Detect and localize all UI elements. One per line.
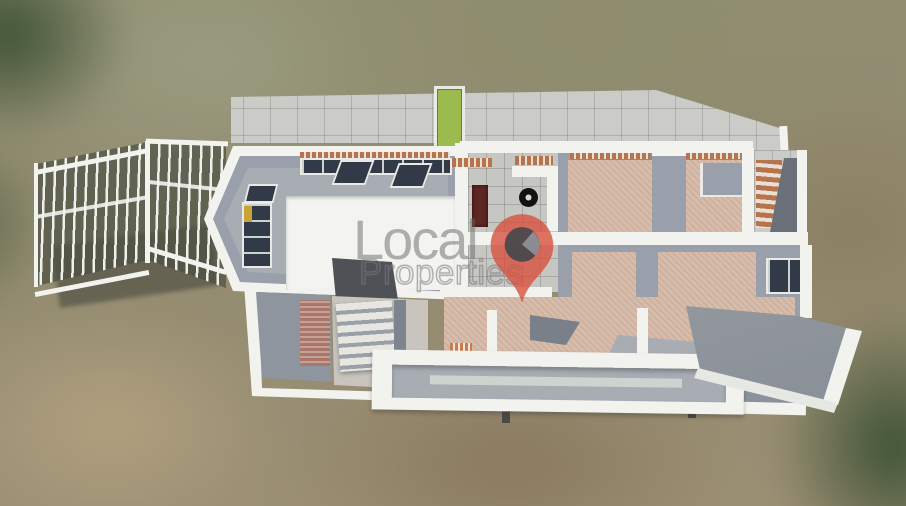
bedroom-divider-wall-top bbox=[652, 150, 686, 156]
courtyard-lintel-2 bbox=[515, 156, 553, 165]
courtyard-lintel-1 bbox=[452, 158, 492, 167]
pergola-post-left-edge bbox=[34, 163, 38, 287]
facade-leg-1 bbox=[502, 410, 510, 423]
bedroom2-east-wall bbox=[742, 148, 754, 236]
round-stove bbox=[519, 188, 538, 207]
east-wall-window bbox=[766, 258, 802, 294]
bedroom2-closet bbox=[700, 163, 743, 197]
bedroom-divider-wall bbox=[652, 156, 686, 235]
bedroom1-floor bbox=[568, 160, 652, 234]
house-east-edge-lower bbox=[800, 245, 812, 318]
bedroom1-lintel bbox=[570, 153, 650, 159]
side-window-orange-panel bbox=[244, 206, 252, 222]
render-viewport: Local Properties bbox=[0, 0, 906, 506]
awning-window-3 bbox=[244, 184, 279, 203]
courtyard-partial-wall bbox=[512, 166, 558, 177]
north-wall-top bbox=[460, 141, 753, 153]
watermark-pin-icon bbox=[488, 212, 556, 306]
bedroom2-lintel bbox=[686, 153, 740, 159]
southwest-brick-wall bbox=[300, 300, 330, 366]
pergola-post-divider bbox=[145, 141, 150, 263]
house-east-edge-upper bbox=[797, 150, 807, 236]
